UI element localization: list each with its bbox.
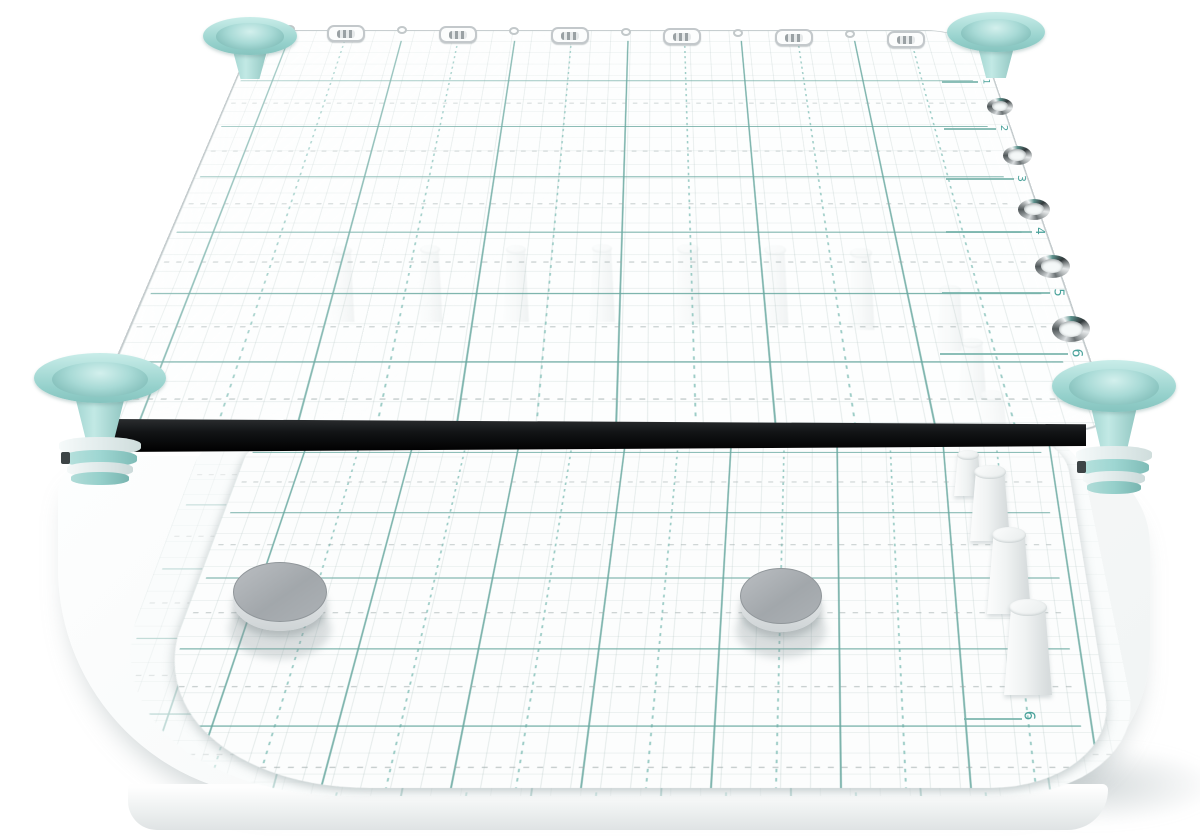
grid-line-horizontal [121,361,1063,362]
grid-line-vertical [450,432,522,788]
grid-line-horizontal-dashed [188,203,1012,204]
acrylic-plate-wrap [85,18,1115,430]
grid-line-horizontal [200,176,1004,177]
grommet-hole [1024,203,1044,216]
grid-line-vertical [615,41,629,429]
peg-cap [1009,599,1046,616]
bottom-left-funnel-stem-band [71,472,129,485]
chrome-grommet [1052,316,1090,342]
grid-line-horizontal-dashed [241,481,1045,482]
plate-ruler-line [946,178,1014,180]
peg-cap [992,527,1026,543]
grid-line-vertical-dotted [385,432,470,788]
grid-line-horizontal-dashed [106,398,1076,399]
grid-line-horizontal [206,577,1060,578]
peg [1004,599,1052,695]
edge-slot [775,29,813,46]
plate-ruler-number: 1 [980,78,989,84]
grid-line-vertical-dotted [889,432,907,788]
edge-hole-small [509,27,519,35]
grid-line-vertical [836,432,842,788]
grid-line-horizontal-dashed [165,686,1075,687]
magnet-disc [233,562,327,622]
plate-ruler-line [942,292,1050,294]
chrome-grommet [987,98,1013,115]
grid-line-vertical-dotted [515,432,575,788]
bottom-right-funnel-bowl [1069,369,1158,405]
grommet-hole [992,101,1009,111]
edge-slot-inner [785,34,803,42]
bottom-left-funnel-stem-notch [61,452,70,464]
grid-line-horizontal [150,293,1041,294]
grid-line-vertical [455,41,515,429]
plate-ruler-number: 2 [998,125,1008,131]
edge-slot [439,26,477,43]
grommet-hole [1008,149,1027,160]
plate-ruler-line [942,81,978,83]
plate-ruler-number: 6 [1069,349,1083,358]
grid-line-horizontal [151,725,1081,726]
grid-line-horizontal [176,232,1021,233]
grid-line-vertical [854,41,937,429]
grid-line-vertical [580,432,627,788]
bottom-right-funnel-stem-band [1087,481,1142,494]
grommet-hole [1041,259,1063,273]
bottom-right-funnel-stem-notch [1077,461,1086,473]
grid-line-horizontal-dashed [136,326,1052,327]
edge-slot-inner [561,32,579,40]
grommet-hole [1059,321,1083,337]
grid-line-horizontal [221,126,988,127]
plate-ruler-line [940,353,1068,355]
top-left-funnel-bowl [216,23,284,50]
edge-slot-inner [337,30,355,38]
grid-line-vertical-dotted [535,41,572,429]
edge-hole-small [397,26,407,34]
grid-line-vertical-dotted [216,41,346,429]
plate-ruler-number: 5 [1052,288,1065,296]
grid-line-horizontal-dashed [164,261,1032,262]
edge-hole-small [845,30,855,38]
edge-hole-small [621,28,631,36]
edge-slot-inner [673,33,691,41]
chrome-grommet [1003,146,1032,165]
plate-ruler-number: 3 [1016,175,1027,182]
grid-line-horizontal-dashed [211,151,996,152]
grid-line-horizontal-dashed [218,544,1055,545]
edge-slot [663,28,701,45]
edge-slot [327,25,365,42]
base-ruler-line [964,718,1022,720]
bottom-left-funnel-bowl [52,362,147,397]
plate-ruler-line [946,231,1032,233]
grid-line-vertical-dotted [797,41,857,429]
grid-line-horizontal-dashed [135,767,1087,768]
grid-line-vertical-dotted [684,41,697,429]
chrome-grommet [1035,255,1070,278]
grid-line-vertical-dotted [645,432,680,788]
grid-line-vertical [710,432,733,788]
grid-line-vertical [320,432,417,788]
grid-line-horizontal [240,80,973,81]
base-ruler-number: 6 [1021,711,1036,721]
peg-cap [957,450,979,460]
plate-ruler-line [944,128,996,130]
edge-slot-inner [449,31,467,39]
grid-line-horizontal [252,452,1041,453]
product-image: 6 123456 [0,0,1200,836]
plate-ruler-number: 4 [1034,227,1046,235]
grid-line-horizontal [230,512,1050,513]
magnet-disc [740,568,822,624]
grid-line-horizontal-dashed [231,103,980,104]
chrome-grommet [1018,199,1050,220]
peg-cap [974,465,1005,479]
grid-line-vertical [295,41,402,429]
grid-line-vertical [741,41,777,429]
grid-line-vertical-dotted [375,41,458,429]
edge-slot-inner [897,36,915,44]
edge-hole-small [733,29,743,37]
plate-grid [88,31,1113,429]
edge-slot [551,27,589,44]
top-right-funnel-bowl [961,19,1032,47]
edge-slot [887,31,925,48]
